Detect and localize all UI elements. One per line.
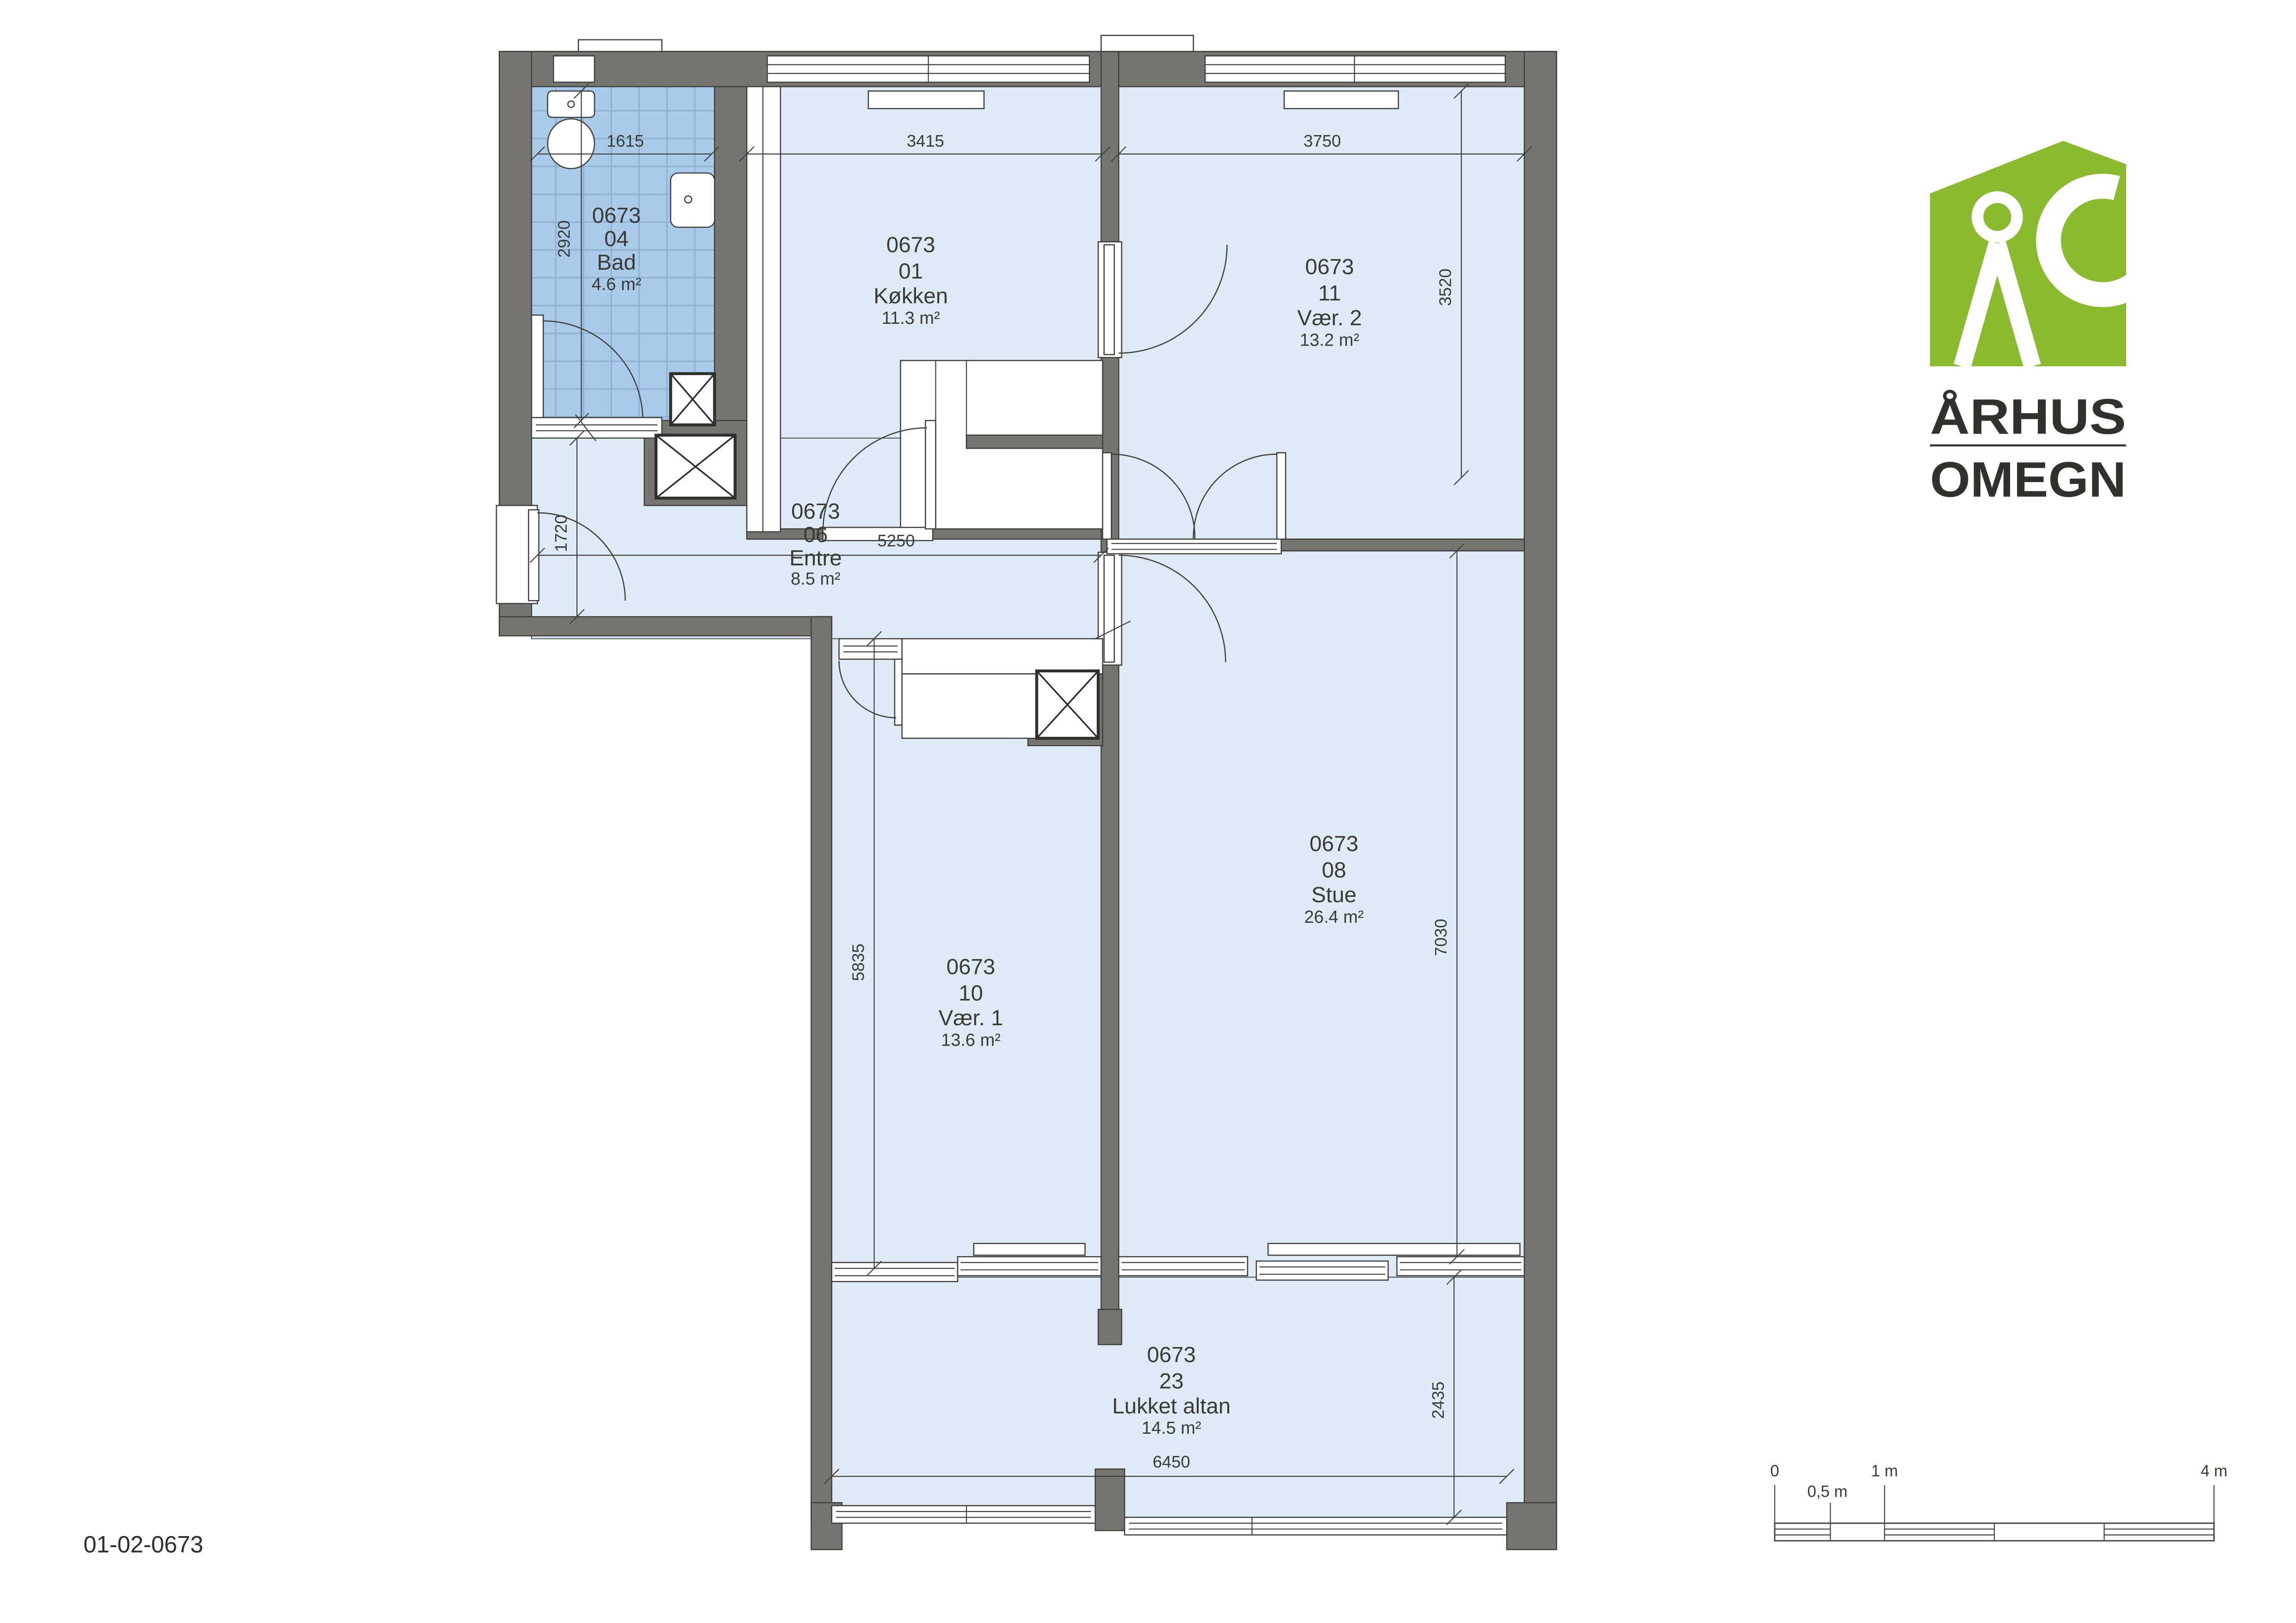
svg-text:4.6 m²: 4.6 m² [592, 275, 642, 294]
drawing-number: 01-02-0673 [83, 1531, 203, 1558]
toilet-tank-icon [548, 91, 594, 118]
window-bay-bath [578, 40, 662, 51]
balcony-pier-middle [1095, 1469, 1125, 1530]
double-door-leaf-left [1102, 453, 1111, 539]
svg-text:0673: 0673 [592, 204, 641, 228]
radiator-room1 [974, 1244, 1085, 1255]
scale-label-05: 0,5 m [1807, 1482, 1848, 1500]
svg-text:Bad: Bad [597, 250, 636, 275]
wall-bath-kitchen [715, 87, 747, 438]
window-band-room1-b [958, 1257, 1101, 1276]
radiator-kitchen [868, 91, 984, 109]
scale-bar: 0 0,5 m 1 m 4 m [1770, 1462, 2228, 1541]
svg-text:0673: 0673 [886, 233, 935, 257]
svg-text:2435: 2435 [1429, 1381, 1448, 1419]
svg-text:0673: 0673 [1305, 254, 1354, 279]
svg-text:Vær. 2: Vær. 2 [1297, 306, 1362, 330]
svg-text:2920: 2920 [554, 220, 573, 258]
glazing-left [832, 1505, 1095, 1523]
balcony-pier-right [1507, 1503, 1557, 1549]
svg-text:04: 04 [604, 227, 629, 251]
window-bay-middle [1101, 35, 1193, 51]
svg-text:13.6 m²: 13.6 m² [941, 1030, 1001, 1050]
svg-text:06: 06 [804, 523, 828, 547]
wall-room2-livingroom [1281, 539, 1524, 551]
svg-text:0673: 0673 [791, 499, 840, 524]
toilet-bowl-icon [548, 119, 594, 169]
floor-plan-sheet: 1615 2920 3415 3750 3520 1720 [0, 0, 2296, 1623]
svg-text:0673: 0673 [1147, 1343, 1196, 1367]
radiator-room2 [1284, 91, 1399, 109]
svg-text:Entre: Entre [789, 546, 842, 570]
svg-text:Vær. 1: Vær. 1 [939, 1006, 1003, 1030]
exterior-wall-right [1524, 51, 1557, 1520]
svg-text:13.2 m²: 13.2 m² [1300, 330, 1360, 350]
svg-text:3415: 3415 [907, 131, 944, 150]
scale-label-4: 4 m [2201, 1462, 2228, 1480]
floor-plan-drawing: 1615 2920 3415 3750 3520 1720 [0, 0, 2296, 1623]
room1-closet [902, 674, 1037, 738]
room1-closet-top [902, 639, 1103, 674]
window-band-room1-a [832, 1263, 958, 1282]
svg-text:0673: 0673 [1310, 831, 1359, 856]
kitchen-half-wall [966, 435, 1102, 448]
wall-kitchen-south-right [933, 529, 1102, 539]
window-band-livingroom-a [1119, 1257, 1248, 1276]
sink-icon [671, 173, 715, 227]
kitchen-room2-door-leaf [1104, 245, 1114, 354]
svg-text:Stue: Stue [1312, 883, 1357, 907]
svg-text:1720: 1720 [551, 514, 570, 552]
svg-text:Lukket altan: Lukket altan [1112, 1394, 1231, 1419]
wall-divider-end-cap [1098, 1309, 1122, 1344]
exterior-wall-left-lower [811, 617, 832, 1520]
scale-label-0: 0 [1770, 1462, 1779, 1480]
svg-text:11: 11 [1318, 281, 1341, 305]
window-bath [553, 56, 594, 82]
window-room2 [1205, 56, 1505, 82]
svg-text:Køkken: Køkken [873, 284, 948, 309]
kitchen-counter-left [747, 87, 780, 532]
svg-text:3520: 3520 [1436, 268, 1455, 306]
exterior-wall-entre-step [499, 617, 831, 636]
glazing-right [1125, 1518, 1507, 1535]
svg-text:01: 01 [898, 259, 923, 284]
svg-text:7030: 7030 [1431, 919, 1450, 956]
svg-text:5250: 5250 [878, 531, 915, 550]
svg-text:0673: 0673 [947, 954, 996, 979]
svg-text:11.3 m²: 11.3 m² [882, 309, 940, 328]
bath-door-leaf [532, 315, 543, 421]
svg-text:5835: 5835 [848, 944, 867, 981]
svg-text:10: 10 [959, 981, 983, 1005]
scale-label-1: 1 m [1871, 1462, 1898, 1480]
svg-text:6450: 6450 [1153, 1452, 1190, 1471]
svg-text:14.5 m²: 14.5 m² [1142, 1419, 1201, 1438]
room-fills [532, 87, 1524, 1520]
double-door-leaf-right [1277, 453, 1286, 539]
entre-livingroom-door-leaf [1104, 555, 1114, 662]
radiator-livingroom [1268, 1244, 1520, 1255]
logo-text-line2: OMEGN [1930, 452, 2126, 507]
svg-text:23: 23 [1159, 1369, 1184, 1394]
window-band-livingroom-c [1397, 1257, 1524, 1276]
kitchen-door-leaf [925, 421, 935, 529]
bath-sliding-door [532, 415, 662, 441]
arhus-omegn-logo: ÅRHUS OMEGN [1930, 141, 2157, 507]
window-band-livingroom-b [1256, 1261, 1388, 1280]
svg-text:3750: 3750 [1304, 131, 1341, 150]
svg-text:1615: 1615 [606, 131, 644, 150]
svg-text:08: 08 [1322, 858, 1346, 882]
svg-text:8.5 m²: 8.5 m² [791, 569, 841, 588]
logo-text-line1: ÅRHUS [1930, 389, 2126, 444]
svg-text:26.4 m²: 26.4 m² [1304, 908, 1364, 927]
